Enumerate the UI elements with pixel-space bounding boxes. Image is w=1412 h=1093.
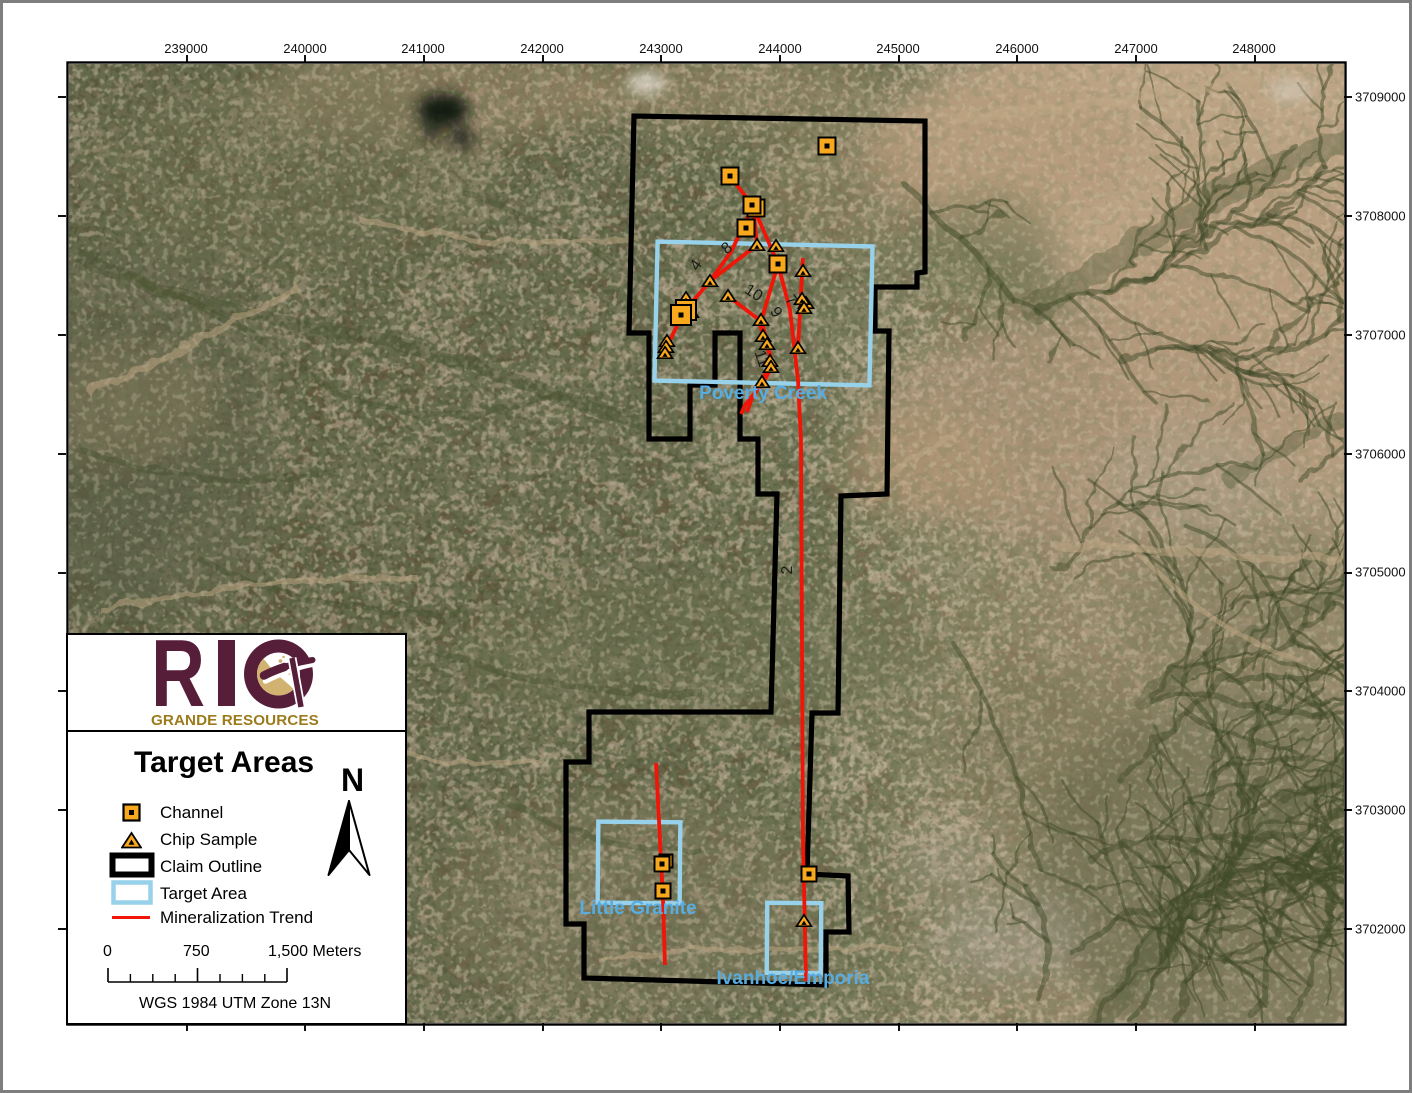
- svg-text:Poverty Creek: Poverty Creek: [699, 383, 827, 404]
- svg-text:2: 2: [779, 565, 796, 574]
- svg-text:GRANDE RESOURCES: GRANDE RESOURCES: [151, 712, 319, 729]
- svg-text:Little Granite: Little Granite: [579, 898, 696, 919]
- svg-text:Ivanhoe/Emporia: Ivanhoe/Emporia: [716, 968, 870, 989]
